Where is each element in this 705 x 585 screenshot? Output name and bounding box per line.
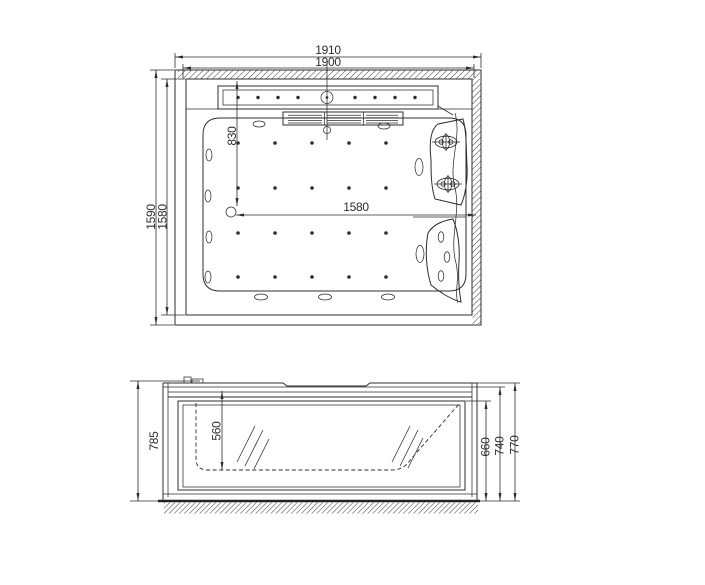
technical-drawing: 1910 1900 1590 1580 83	[0, 0, 705, 585]
plan-pillows	[426, 119, 467, 302]
massage-jet-icon	[434, 175, 462, 193]
lower-pillow	[426, 219, 461, 302]
plan-basin	[203, 113, 466, 303]
dim-apron-height: 660	[466, 401, 493, 501]
dim-rim-height-label: 740	[493, 436, 507, 456]
interior-profile	[196, 403, 459, 470]
upper-pillow	[430, 119, 467, 205]
dim-interior-length-label: 1580	[343, 200, 369, 214]
ground	[158, 501, 480, 514]
dim-interior-length: 1580	[236, 200, 476, 215]
dim-jet-offset-label: 830	[225, 126, 239, 146]
dim-overall-height: 785	[130, 381, 200, 501]
pillow-holes	[438, 232, 450, 281]
plan-deck	[175, 70, 481, 325]
elevation-dimensions: 785 560 660 740 770	[130, 381, 522, 501]
plan-view: 1910 1900 1590 1580 83	[144, 43, 481, 325]
dim-overall-depth: 1590	[144, 70, 174, 325]
drawing-canvas: 1910 1900 1590 1580 83	[0, 0, 705, 585]
dim-apron-height-label: 660	[479, 437, 493, 457]
wall-hatch-right	[473, 79, 481, 324]
dim-rim-width-label: 1900	[315, 55, 341, 69]
glass-reflections	[237, 426, 423, 469]
dim-interior-depth-label: 560	[210, 421, 224, 441]
front-panel-glass	[183, 405, 460, 487]
front-panel	[178, 401, 465, 490]
ground-hatch	[164, 503, 478, 514]
dim-rim-depth-label: 1580	[156, 204, 170, 230]
massage-jet-icon	[432, 133, 460, 151]
dim-rim-depth: 1580	[156, 79, 186, 315]
wall-hatch-top	[178, 71, 480, 79]
dim-interior-depth: 560	[210, 391, 224, 470]
deck-faucet	[184, 377, 191, 383]
reference-jet	[226, 207, 236, 217]
elevation-view: 785 560 660 740 770	[130, 377, 522, 514]
dim-overall-height-label: 785	[147, 431, 161, 451]
dim-deck-height-label: 770	[508, 435, 522, 455]
dim-jet-offset: 830	[225, 81, 239, 217]
wall-jets	[205, 121, 424, 300]
